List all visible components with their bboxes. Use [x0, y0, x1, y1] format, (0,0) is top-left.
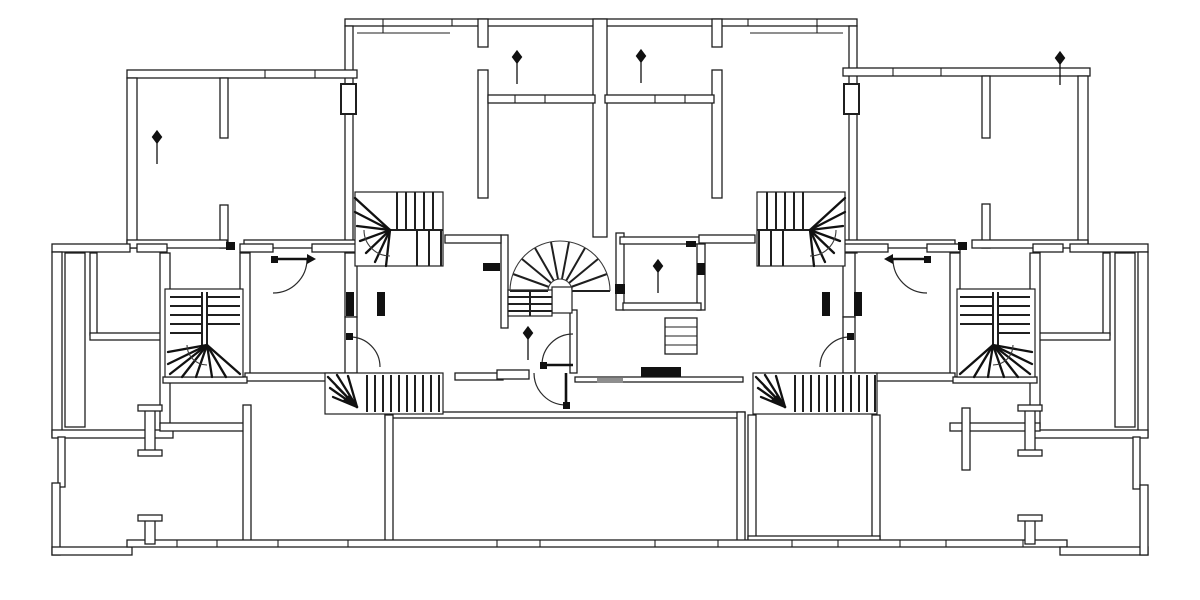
stair-lower-left-flight — [325, 373, 443, 414]
stair-upper-left-winder — [355, 192, 443, 266]
floor-plan-canvas — [0, 0, 1200, 600]
stair-upper-right-winder — [757, 192, 845, 266]
stair-left-wing-winder — [165, 289, 243, 377]
stair-right-wing-winder — [957, 289, 1035, 377]
floor-plan — [0, 0, 1200, 600]
stair-lower-right-flight — [753, 373, 877, 414]
